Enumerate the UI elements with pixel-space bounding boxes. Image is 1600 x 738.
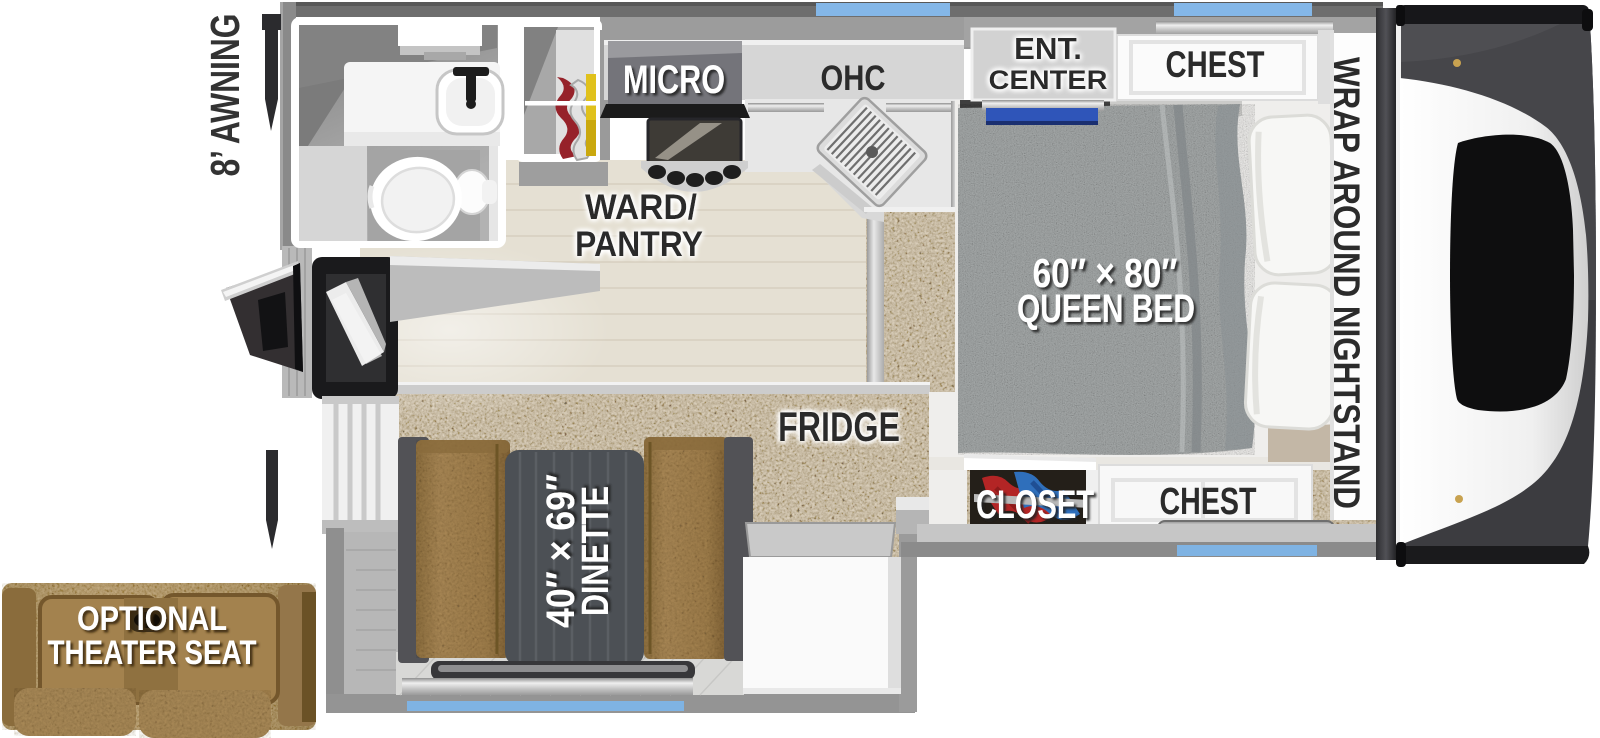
svg-text:WRAP AROUND NIGHTSTAND: WRAP AROUND NIGHTSTAND <box>1326 57 1367 509</box>
svg-text:WARD/: WARD/ <box>585 188 697 227</box>
svg-text:THEATER SEAT: THEATER SEAT <box>48 634 257 672</box>
svg-text:OHC: OHC <box>821 59 886 98</box>
svg-text:QUEEN BED: QUEEN BED <box>1017 287 1195 331</box>
svg-text:8’ AWNING: 8’ AWNING <box>202 14 248 177</box>
svg-text:CENTER: CENTER <box>989 65 1108 95</box>
svg-text:DINETTE: DINETTE <box>575 486 617 616</box>
svg-text:OPTIONAL: OPTIONAL <box>77 600 227 638</box>
svg-text:MICRO: MICRO <box>623 58 725 102</box>
svg-text:FRIDGE: FRIDGE <box>778 403 900 450</box>
svg-text:CLOSET: CLOSET <box>976 483 1094 527</box>
svg-text:PANTRY: PANTRY <box>575 225 703 264</box>
svg-text:CHEST: CHEST <box>1160 481 1257 523</box>
svg-text:ENT.: ENT. <box>1014 31 1082 66</box>
svg-text:CHEST: CHEST <box>1166 44 1265 85</box>
